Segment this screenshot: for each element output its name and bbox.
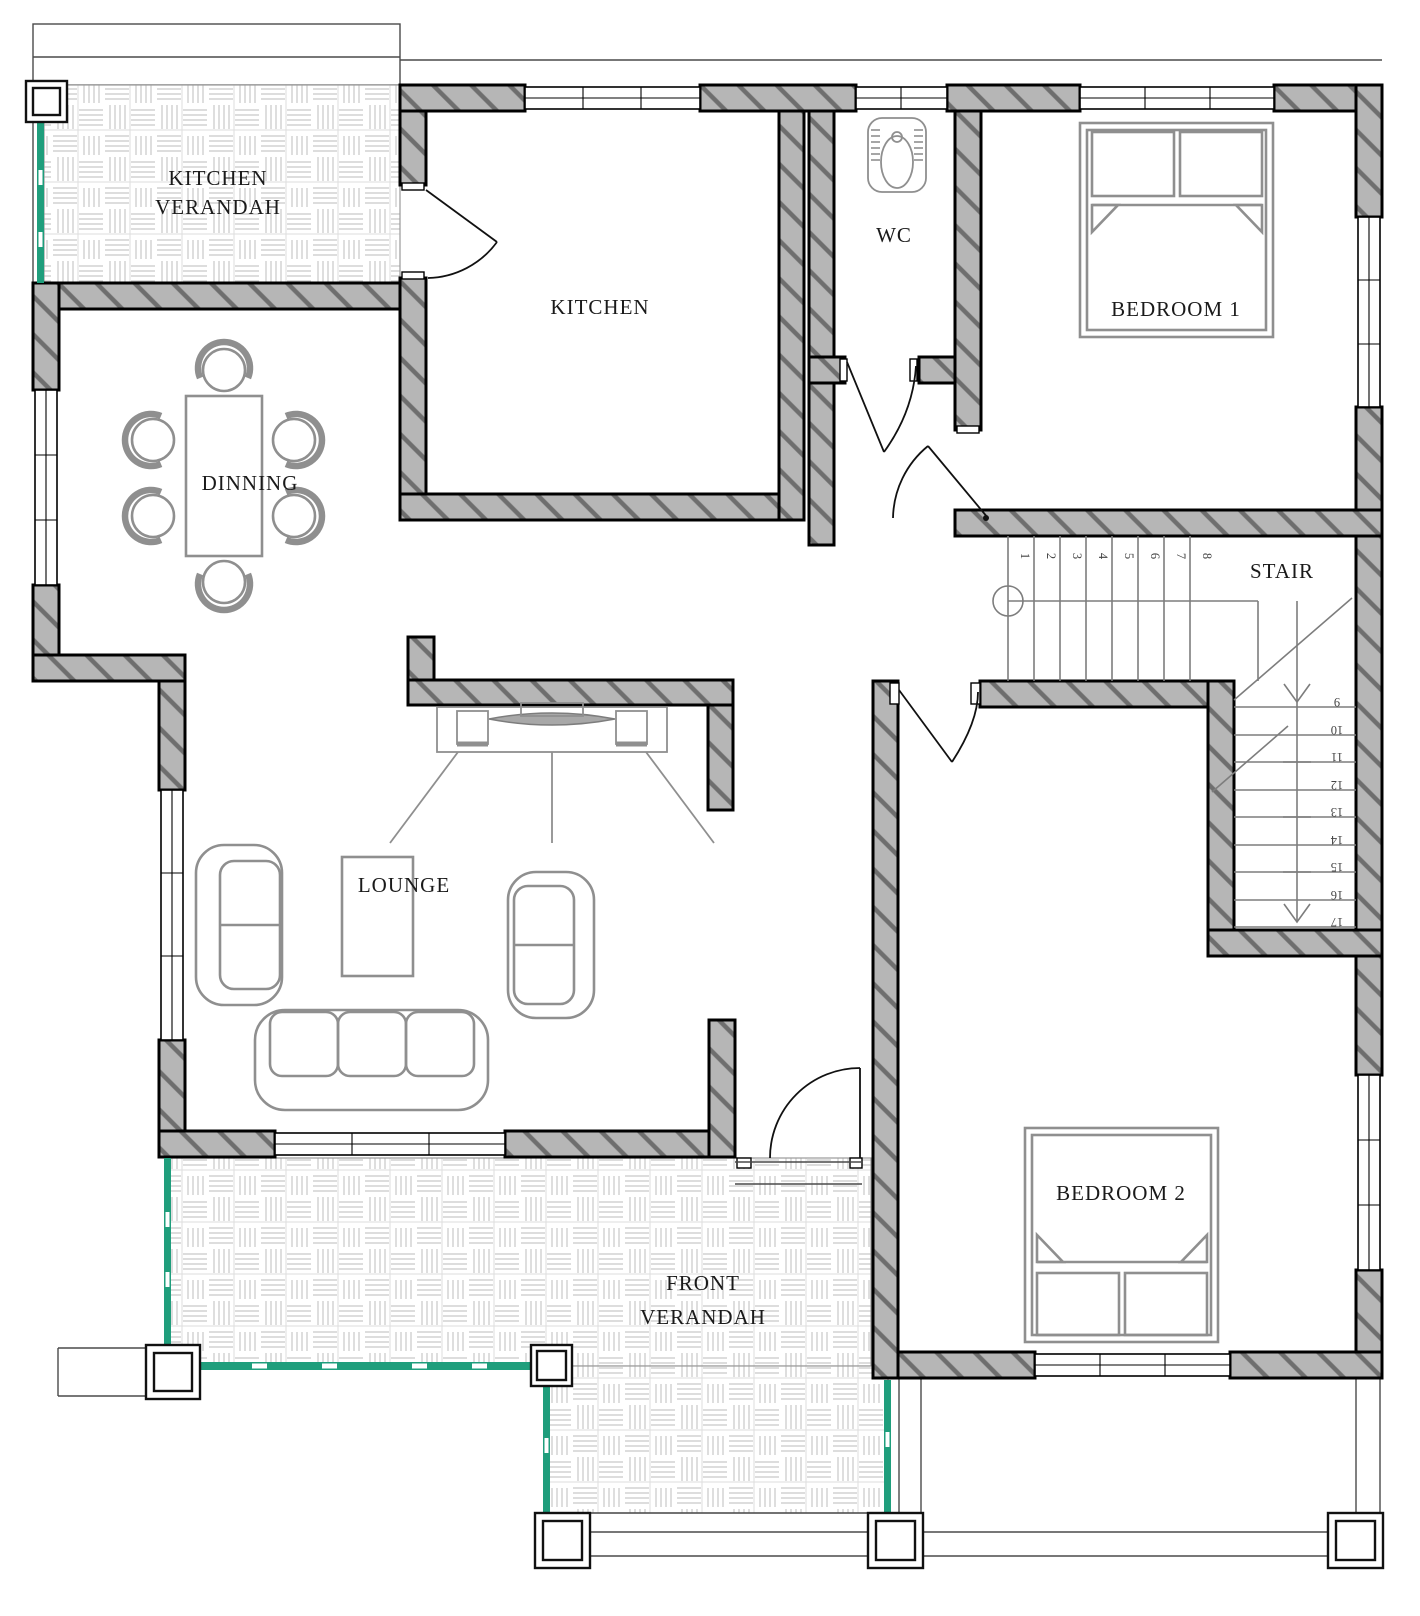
stair-step-number: 11 <box>1331 750 1343 764</box>
front-verandah-label-line2: VERANDAH <box>640 1305 766 1329</box>
toilet-icon <box>868 118 926 192</box>
lounge-left-window <box>161 790 183 1040</box>
verandah-column <box>535 1513 590 1568</box>
bedroom2-bottom-window <box>1035 1354 1230 1376</box>
verandah-column <box>146 1345 200 1399</box>
verandah-column <box>531 1345 572 1386</box>
front-verandah-railing-bottom <box>200 1362 531 1370</box>
bedroom1-door-swing <box>893 426 989 521</box>
bedroom1-label: BEDROOM 1 <box>1111 297 1241 321</box>
front-verandah-floor <box>170 1158 888 1513</box>
sofa-icon <box>255 1010 488 1110</box>
verandah-column <box>26 81 67 122</box>
armchair-right-icon <box>508 872 594 1018</box>
stair-step-number: 4 <box>1096 553 1110 560</box>
stair-assembly: 1 2 3 4 5 6 7 8 9 10 11 12 13 14 15 16 1… <box>993 536 1356 929</box>
stair-direction-arrow <box>1283 601 1311 922</box>
verandah-column <box>1328 1513 1383 1568</box>
stair-step-number: 5 <box>1122 553 1136 559</box>
bedroom1-top-window <box>1080 87 1274 109</box>
dinning-left-window <box>35 390 57 585</box>
lounge-bottom-window <box>275 1133 505 1155</box>
front-verandah-railing-right <box>884 1380 891 1513</box>
stair-label: STAIR <box>1250 559 1314 583</box>
verandah-column <box>868 1513 923 1568</box>
tv-unit-icon <box>390 703 714 843</box>
stair-step-number: 3 <box>1070 553 1084 559</box>
bed2-icon <box>1025 1128 1218 1342</box>
wc-top-window <box>856 87 947 109</box>
floor-plan-drawing: 1 2 3 4 5 6 7 8 9 10 11 12 13 14 15 16 1… <box>0 0 1420 1616</box>
stair-step-number: 7 <box>1174 553 1188 559</box>
kitchen-verandah-railing <box>37 120 44 283</box>
stair-step-number: 10 <box>1331 723 1344 737</box>
stair-step-number: 9 <box>1334 695 1340 709</box>
stair-step-number: 17 <box>1331 915 1344 929</box>
bedroom1-right-window <box>1358 217 1380 407</box>
stair-step-number: 8 <box>1200 553 1214 559</box>
front-verandah-railing-left <box>164 1158 171 1345</box>
floor-plan-page: 1 2 3 4 5 6 7 8 9 10 11 12 13 14 15 16 1… <box>0 0 1420 1616</box>
front-verandah-railing-mid <box>543 1386 550 1513</box>
stair-step-number: 14 <box>1330 833 1343 847</box>
stair-step-number: 12 <box>1331 778 1344 792</box>
stair-step-number: 13 <box>1331 805 1344 819</box>
lounge-label: LOUNGE <box>358 873 450 897</box>
armchair-left-icon <box>196 845 282 1005</box>
kitchen-door-swing <box>402 183 497 279</box>
wc-door-swing <box>840 359 917 452</box>
kitchen-verandah-label-line2: VERANDAH <box>155 195 281 219</box>
kitchen-label: KITCHEN <box>550 295 649 319</box>
kitchen-top-window <box>525 87 700 109</box>
hall-double-door-swing <box>890 683 980 762</box>
dinning-label: DINNING <box>202 471 299 495</box>
wc-label: WC <box>876 223 912 247</box>
stair-step-number: 16 <box>1331 888 1344 902</box>
stair-step-number: 2 <box>1044 553 1058 559</box>
front-verandah-label-line1: FRONT <box>666 1271 740 1295</box>
bedroom2-label: BEDROOM 2 <box>1056 1181 1186 1205</box>
stair-step-number: 15 <box>1331 860 1344 874</box>
stair-step-number: 1 <box>1018 553 1032 559</box>
bedroom2-right-window <box>1358 1075 1380 1270</box>
kitchen-verandah-label-line1: KITCHEN <box>168 166 267 190</box>
stair-step-number: 6 <box>1148 553 1162 559</box>
